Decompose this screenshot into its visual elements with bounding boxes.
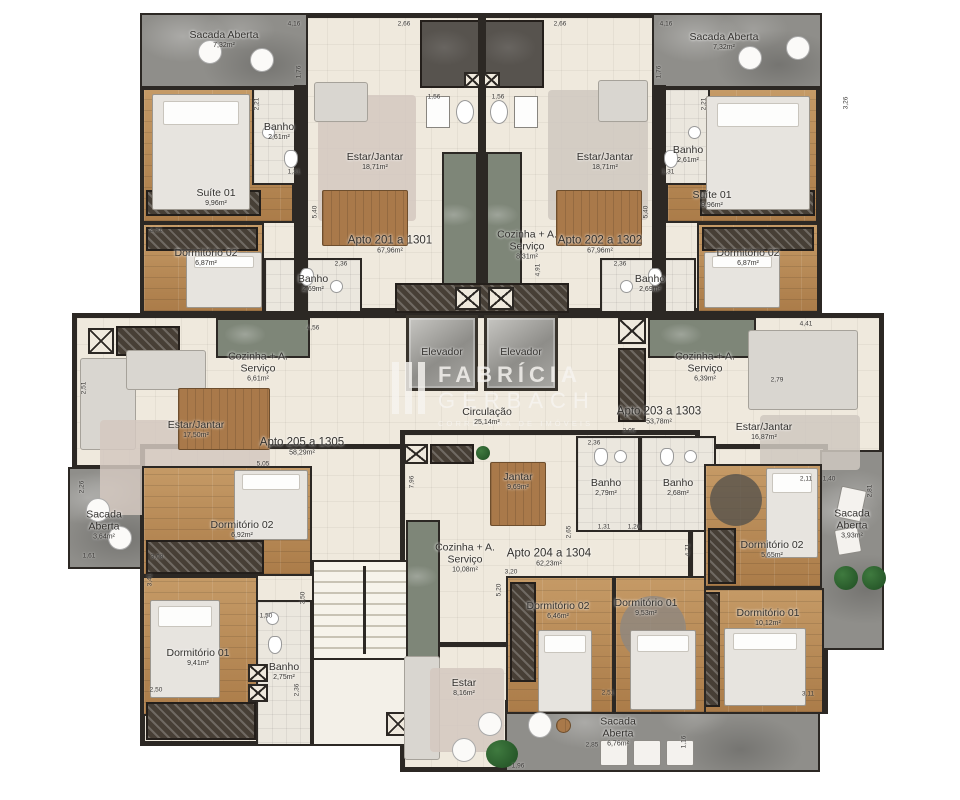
shaft: [395, 283, 569, 313]
label-apto-204: Apto 204 a 130462,23m²: [503, 548, 595, 569]
label-dormitorio-01-205: Dormitório 019,41m²: [166, 648, 229, 668]
label-banho-suite-201: Banho2,61m²: [264, 122, 294, 142]
stairs-rail: [363, 566, 366, 654]
dim-label: 2,05: [623, 428, 636, 435]
label-apto-201: Apto 201 a 130167,96m²: [344, 235, 436, 256]
vent-shaft-x-icon: [248, 684, 268, 702]
dim-label: 2,26: [79, 481, 86, 494]
wall: [478, 13, 486, 313]
label-banho-205: Banho2,75m²: [269, 662, 299, 682]
sofa: [748, 330, 858, 410]
label-banho-202: Banho2,69m²: [635, 274, 665, 294]
dim-label: 4,16: [660, 21, 673, 28]
washer-icon: [514, 96, 538, 128]
sofa: [314, 82, 368, 122]
dim-label: 1,76: [656, 66, 663, 79]
round-rug: [710, 474, 762, 526]
bed: [724, 628, 806, 706]
laundry-sink-icon: [490, 100, 508, 124]
room-sacada-201: [140, 13, 308, 88]
vent-shaft-x-icon: [464, 72, 481, 88]
toilet-icon: [660, 448, 674, 466]
dim-label: 5,40: [643, 206, 650, 219]
balcony-chair: [250, 48, 274, 72]
label-dormitorio-02-203: Dormitório 025,65m²: [740, 540, 803, 560]
dim-label: 2,66: [398, 21, 411, 28]
dim-label: 2,81: [867, 485, 874, 498]
dim-label: 2,79: [771, 377, 784, 384]
label-elevador-2: Elevador: [500, 347, 541, 359]
label-suite-201: Suíte 019,96m²: [196, 188, 235, 208]
shaft: [430, 444, 474, 464]
balcony-chair: [528, 712, 552, 738]
dim-label: 3,11: [802, 691, 814, 698]
label-sacada-203: Sacada Aberta3,93m²: [823, 508, 881, 539]
sink-icon: [620, 280, 633, 293]
laundry-sink-icon: [456, 100, 474, 124]
label-estar-205: Estar/Jantar17,50m²: [168, 420, 225, 440]
toilet-icon: [594, 448, 608, 466]
label-suite-202: Suíte 019,96m²: [692, 190, 731, 210]
dim-label: 2,21: [254, 98, 261, 111]
sofa: [598, 80, 648, 122]
dim-label: 1,31: [598, 524, 611, 531]
dim-label: 2,36: [614, 261, 627, 268]
vent-shaft-x-icon: [483, 72, 500, 88]
dim-label: 1,56: [492, 94, 505, 101]
label-jantar-204: Jantar9,69m²: [503, 472, 532, 492]
dim-label: 2,66: [554, 21, 567, 28]
dim-label: 1,76: [296, 66, 303, 79]
dim-label: 1,61: [83, 553, 96, 560]
dim-label: 1,26: [628, 524, 641, 531]
dim-label: 1,56: [428, 94, 441, 101]
label-elevador-1: Elevador: [421, 347, 462, 359]
dim-label: 5,20: [496, 584, 503, 597]
toilet-icon: [284, 150, 298, 168]
label-dormitorio-02-201: Dormitório 026,87m²: [174, 248, 237, 268]
closet: [510, 582, 536, 682]
dim-label: 2,51: [81, 382, 88, 395]
label-estar-201: Estar/Jantar18,71m²: [347, 152, 404, 172]
label-sacada-205: Sacada Aberta3,64m²: [75, 509, 133, 540]
dim-label: 4,71: [685, 544, 692, 557]
floor-plan: FABRÍCIA GERBACH CORRETORA DE IMÓVEIS Sa…: [0, 0, 960, 800]
dim-label: 2,36: [335, 261, 348, 268]
sofa: [126, 350, 206, 390]
label-banho-204: Banho2,79m²: [591, 478, 621, 498]
closet: [708, 528, 736, 584]
dim-label: 1,96: [512, 763, 525, 770]
dim-label: 4,91: [535, 264, 542, 277]
dim-label: 2,85: [586, 742, 599, 749]
dim-label: 3,20: [505, 569, 518, 576]
dim-label: 2,21: [701, 98, 708, 111]
watermark-line1: FABRÍCIA: [438, 362, 596, 388]
plant-icon: [862, 566, 886, 590]
dim-label: 2,91: [150, 227, 163, 234]
label-dormitorio-01-203: Dormitório 0110,12m²: [736, 608, 799, 628]
armchair: [452, 738, 476, 762]
dim-label: 2,36: [294, 684, 301, 697]
vent-shaft-x-icon: [455, 287, 481, 310]
plant-icon: [476, 446, 490, 460]
sink-icon: [330, 280, 343, 293]
vent-shaft-x-icon: [248, 664, 268, 682]
label-banho-suite-202: Banho2,61m²: [673, 145, 703, 165]
dim-label: 3,50: [300, 592, 307, 605]
label-dormitorio-02-204: Dormitório 026,46m²: [526, 601, 589, 621]
dim-label: 3,08: [151, 554, 164, 561]
balcony-chair: [786, 36, 810, 60]
label-apto-205: Apto 205 a 130558,29m²: [256, 437, 348, 458]
label-apto-203: Apto 203 a 130353,78m²: [613, 406, 705, 427]
dim-label: 4,41: [800, 321, 813, 328]
vent-shaft-x-icon: [488, 287, 514, 310]
label-apto-202: Apto 202 a 130267,96m²: [554, 235, 646, 256]
armchair: [478, 712, 502, 736]
dim-label: 2,51: [602, 690, 615, 697]
washer-icon: [426, 96, 450, 128]
plant-icon: [834, 566, 858, 590]
label-sacada-201: Sacada Aberta7,32m²: [190, 30, 259, 50]
dim-label: 1,16: [681, 736, 688, 749]
label-dormitorio-02-202: Dormitório 026,87m²: [716, 248, 779, 268]
vent-shaft-x-icon: [88, 328, 114, 354]
label-sacada-202: Sacada Aberta7,32m²: [690, 32, 759, 52]
vent-shaft-x-icon: [404, 444, 428, 464]
label-cozinha-204: Cozinha + A. Serviço10,08m²: [419, 542, 511, 573]
dim-label: 2,11: [800, 476, 812, 483]
label-estar-204: Estar8,16m²: [452, 678, 477, 698]
label-dormitorio-02-205: Dormitório 026,92m²: [210, 520, 273, 540]
label-banho-203: Banho2,68m²: [663, 478, 693, 498]
label-dormitorio-01-204: Dormitório 019,53m²: [614, 598, 677, 618]
dim-label: 2,65: [566, 526, 573, 539]
dim-label: 5,05: [257, 461, 270, 468]
sink-icon: [614, 450, 627, 463]
label-estar-202: Estar/Jantar18,71m²: [577, 152, 634, 172]
bed: [538, 630, 592, 712]
dim-label: 4,16: [288, 21, 301, 28]
dim-label: 2,36: [588, 440, 601, 447]
dim-label: 5,40: [312, 206, 319, 219]
dim-label: 4,56: [307, 325, 320, 332]
label-cozinha-203: Cozinha + A. Serviço6,39m²: [659, 351, 751, 382]
label-banho-201: Banho2,69m²: [298, 274, 328, 294]
dim-label: 1,31: [662, 169, 675, 176]
vent-shaft-x-icon: [618, 318, 646, 344]
dim-label: 1,40: [823, 476, 836, 483]
watermark-logo-icon: [392, 362, 428, 414]
dim-label: 3,41: [147, 574, 154, 587]
sink-icon: [688, 126, 701, 139]
dim-label: 2,50: [150, 687, 163, 694]
closet: [146, 540, 264, 574]
bed: [630, 630, 696, 710]
balcony-table: [556, 718, 571, 733]
toilet-icon: [268, 636, 282, 654]
dim-label: 1,31: [288, 169, 301, 176]
label-circulacao: Circulação25,14m²: [462, 407, 512, 427]
dim-label: 3,26: [843, 97, 850, 110]
dim-label: 1,50: [260, 613, 273, 620]
closet: [146, 702, 256, 740]
sink-icon: [684, 450, 697, 463]
label-cozinha-205: Cozinha + A. Serviço6,61m²: [212, 351, 304, 382]
label-estar-203: Estar/Jantar16,87m²: [736, 422, 793, 442]
dim-label: 7,96: [409, 476, 416, 489]
